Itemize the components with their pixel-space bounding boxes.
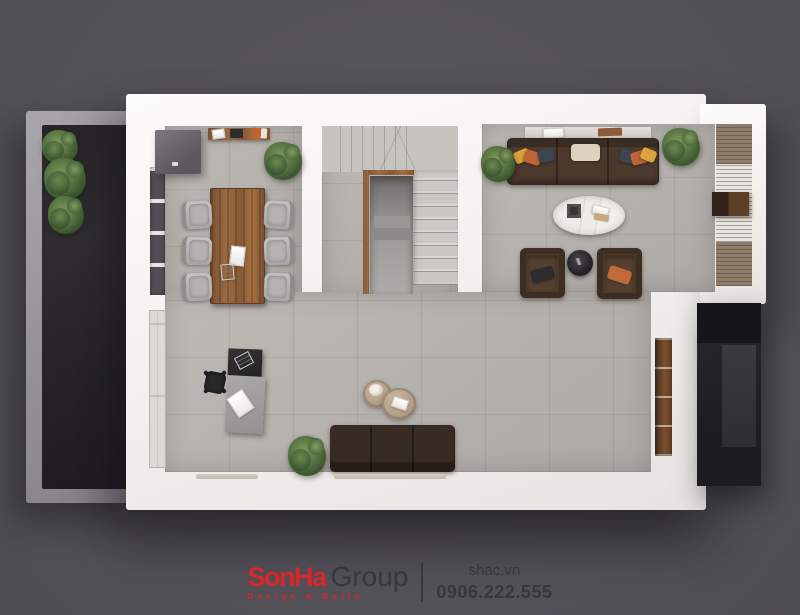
office-chair (198, 366, 232, 400)
tv-niche (712, 192, 749, 216)
wall-console-paper (543, 127, 564, 138)
slat-wall-top (716, 124, 752, 164)
bench-plant-icon (288, 436, 326, 476)
bench-sofa (330, 425, 455, 472)
dining-chair-3 (182, 272, 213, 301)
deck-plant-3-icon (48, 196, 84, 234)
dining-chair-6 (264, 272, 295, 301)
brand-logo: SonHa Group Design & Build (248, 563, 409, 601)
coffee-table-tray (567, 204, 581, 218)
threshold-left (196, 474, 258, 479)
dining-paper-2 (220, 263, 234, 280)
cabinet-handle (172, 162, 178, 166)
storage-cabinet (155, 130, 201, 174)
living-plant-left-icon (481, 146, 515, 182)
dining-chair-2 (182, 236, 213, 265)
door-frame-lintel (364, 170, 414, 175)
cushion-beige-center (571, 144, 600, 161)
dining-chair-5 (264, 236, 295, 265)
exterior-stair-top (697, 303, 761, 343)
dining-chair-1 (181, 200, 212, 230)
door-frame-jamb (363, 170, 369, 294)
deck-plant-2-icon (44, 158, 86, 200)
console-books (252, 127, 268, 138)
threshold-center (334, 474, 446, 479)
website-text: shac.vn (436, 562, 552, 581)
dining-chair-4 (263, 200, 294, 230)
understair-step-2 (374, 228, 410, 240)
dining-plant-icon (264, 142, 302, 180)
brand-name-red: SonHa (248, 564, 326, 591)
stairs-winder-treads (340, 126, 415, 172)
understair-step-1 (374, 216, 410, 228)
flower-bouquet (369, 384, 383, 396)
phone-text: 0906.222.555 (436, 581, 552, 604)
stairs-flight (413, 170, 458, 285)
window-upper-left (150, 167, 165, 295)
watermark: SonHa Group Design & Build shac.vn 0906.… (0, 562, 800, 603)
exterior-stair-inner (722, 345, 756, 447)
brand-name-dark: Group (331, 563, 409, 591)
living-plant-right-icon (662, 128, 700, 166)
coffee-table-oval (553, 196, 625, 235)
contact-block: shac.vn 0906.222.555 (436, 562, 552, 603)
wall-bookshelf-niche (655, 338, 672, 456)
slat-wall-bottom (716, 242, 752, 286)
side-table-round (567, 250, 593, 276)
console-paper (211, 128, 225, 140)
window-lower-left (149, 310, 166, 468)
brand-tagline: Design & Build (248, 592, 409, 601)
floor-plan-render: SonHa Group Design & Build shac.vn 0906.… (0, 0, 800, 615)
watermark-divider (421, 562, 423, 602)
wall-console-book (598, 128, 622, 137)
console-tablet (230, 129, 243, 138)
